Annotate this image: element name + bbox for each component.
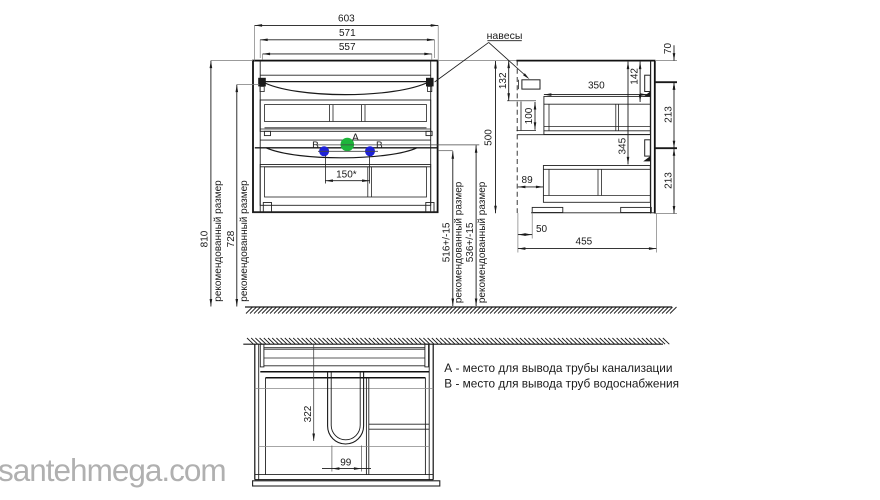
svg-text:навесы: навесы	[487, 30, 523, 42]
svg-text:B: B	[376, 141, 383, 152]
svg-text:810: 810	[200, 230, 211, 247]
svg-text:728: 728	[226, 230, 237, 247]
svg-text:В - место для вывода труб водо: В - место для вывода труб водоснабжения	[444, 377, 679, 391]
svg-text:345: 345	[618, 137, 629, 154]
svg-text:70: 70	[663, 43, 674, 55]
svg-text:89: 89	[522, 175, 534, 186]
svg-text:571: 571	[339, 28, 356, 39]
svg-text:150*: 150*	[336, 170, 357, 181]
svg-text:рекомендованный размер: рекомендованный размер	[477, 181, 488, 303]
svg-text:603: 603	[338, 14, 355, 25]
svg-text:132: 132	[498, 72, 509, 89]
svg-text:516+/-15: 516+/-15	[442, 222, 453, 262]
svg-text:142: 142	[630, 68, 641, 85]
svg-text:santehmega.com: santehmega.com	[0, 452, 226, 488]
svg-text:455: 455	[576, 237, 593, 248]
svg-text:213: 213	[664, 106, 675, 123]
svg-text:500: 500	[483, 129, 494, 146]
svg-text:350: 350	[588, 81, 605, 92]
svg-text:А - место для вывода трубы кан: А - место для вывода трубы канализации	[444, 361, 672, 375]
svg-text:100: 100	[524, 107, 535, 124]
svg-text:A: A	[352, 132, 359, 143]
svg-text:536+/-15: 536+/-15	[465, 222, 476, 262]
svg-text:322: 322	[303, 405, 314, 422]
svg-text:рекомендованный размер: рекомендованный размер	[453, 181, 464, 303]
svg-text:рекомендованный размер: рекомендованный размер	[213, 180, 224, 302]
svg-text:рекомендованный размер: рекомендованный размер	[239, 180, 250, 302]
svg-text:557: 557	[339, 42, 356, 53]
svg-text:99: 99	[340, 457, 352, 468]
svg-text:213: 213	[664, 172, 675, 189]
svg-text:50: 50	[536, 224, 548, 235]
svg-text:B: B	[312, 141, 319, 152]
